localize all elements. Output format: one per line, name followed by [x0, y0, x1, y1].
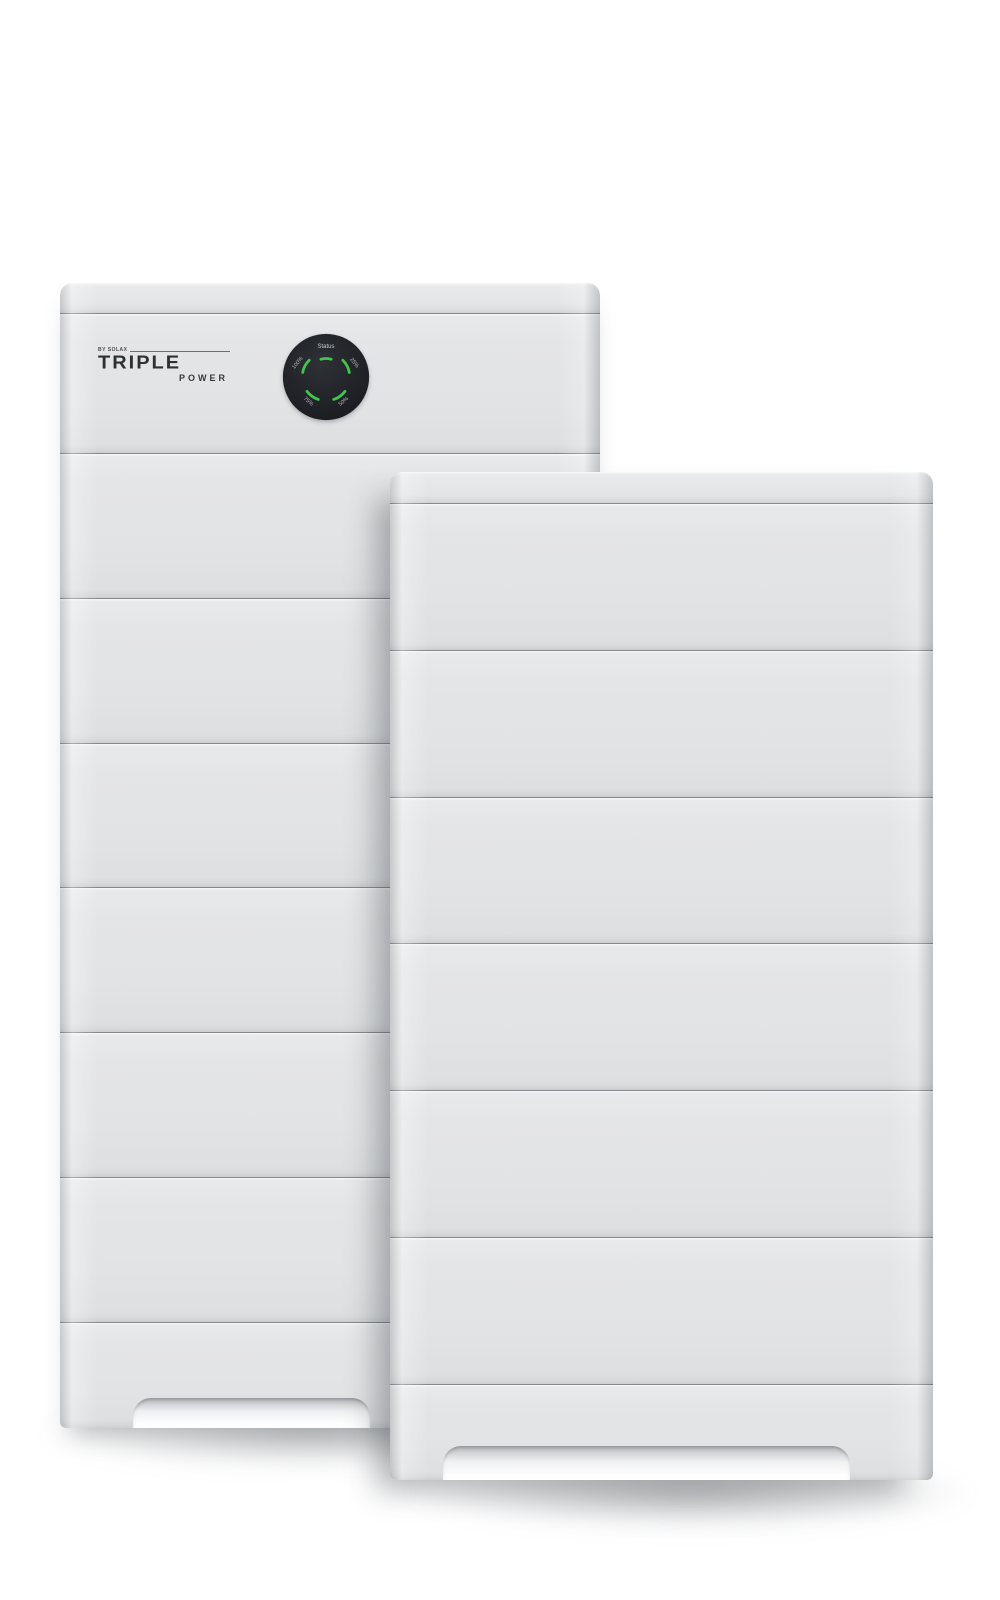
brand-subname: POWER: [98, 374, 230, 383]
foot-cutout-front: [443, 1446, 850, 1480]
foot-cutout-back: [133, 1398, 370, 1428]
battery-module: [390, 1090, 933, 1237]
led-arc-status: [321, 359, 331, 360]
battery-tower-front: [390, 472, 933, 1480]
tower-base-front: [390, 1384, 933, 1480]
logo-rule: [130, 351, 230, 352]
control-head-panel: BY SOLAX TRIPLE POWER Status: [60, 313, 600, 453]
module-stack-front: [390, 503, 933, 1384]
product-photo: BY SOLAX TRIPLE POWER Status: [0, 0, 1000, 1600]
dial-status-label: Status: [318, 344, 335, 350]
tower-cap-back: [60, 283, 600, 313]
battery-module: [390, 650, 933, 797]
tower-cap-front: [390, 472, 933, 503]
battery-module: [390, 797, 933, 944]
brand-logo: BY SOLAX TRIPLE POWER: [98, 346, 230, 383]
battery-status-dial: Status 100% 25% 75% 50%: [282, 333, 370, 421]
battery-module: [390, 943, 933, 1090]
battery-module: [390, 503, 933, 650]
brand-name: TRIPLE: [98, 354, 230, 372]
battery-module: [390, 1237, 933, 1384]
